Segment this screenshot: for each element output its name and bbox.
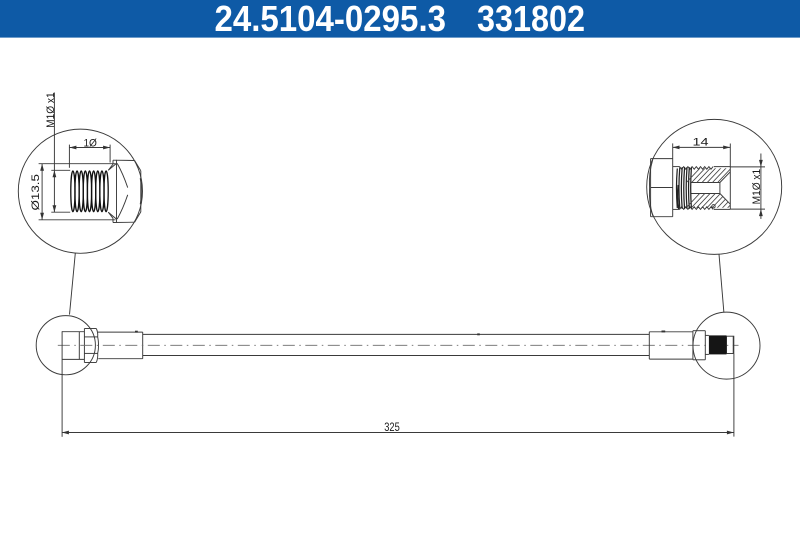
svg-text:331802: 331802 (477, 0, 585, 39)
svg-text:M1Ø x1: M1Ø x1 (751, 169, 763, 205)
svg-text:M1Ø x1: M1Ø x1 (45, 92, 57, 128)
svg-text:325: 325 (384, 420, 400, 434)
svg-text:24.5104-0295.3: 24.5104-0295.3 (215, 0, 447, 39)
svg-text:1Ø: 1Ø (83, 137, 97, 149)
svg-text:Ø13.5: Ø13.5 (30, 174, 42, 211)
svg-text:14: 14 (693, 136, 709, 148)
